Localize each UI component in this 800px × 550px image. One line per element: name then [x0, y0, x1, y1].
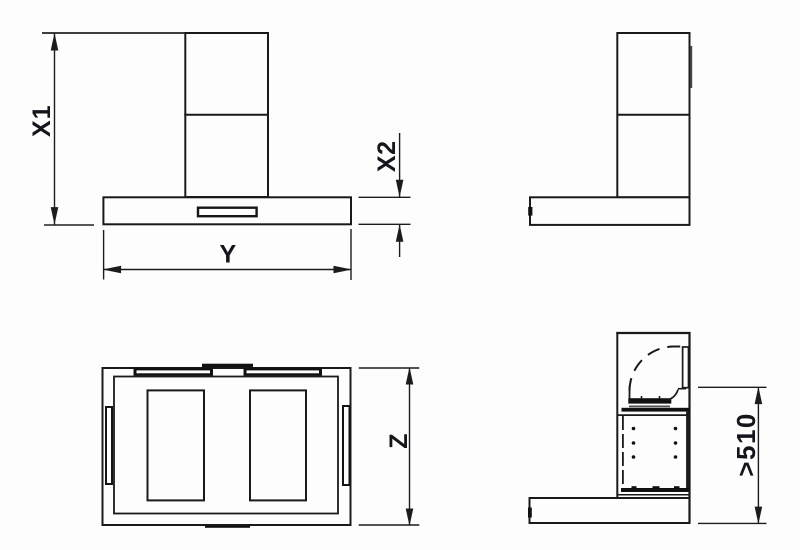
svg-text:Z: Z	[385, 433, 413, 448]
svg-text:>510: >510	[731, 412, 761, 477]
svg-text:X1: X1	[28, 104, 56, 137]
svg-text:Y: Y	[219, 241, 236, 269]
svg-text:X2: X2	[373, 141, 401, 173]
